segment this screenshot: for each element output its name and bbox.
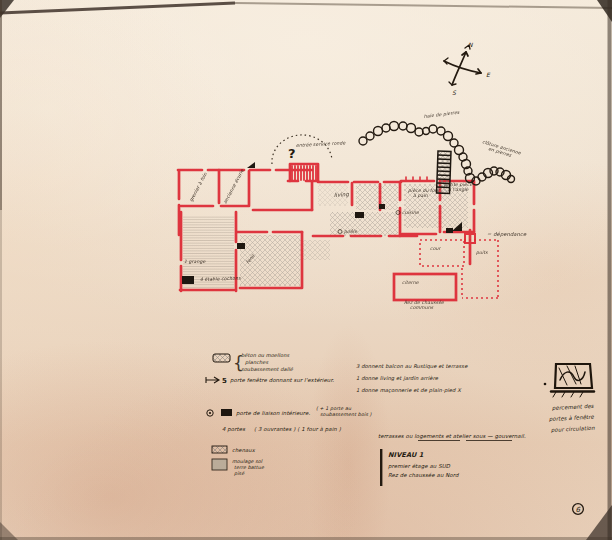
legend-material-1: béton ou moellons <box>241 352 289 358</box>
legend-material-3: soubassement dallé <box>241 366 294 372</box>
legend-liaison-paren-2: soubassement bois ) <box>320 412 372 417</box>
legend-right-2: 1 donne living et jardin arrière <box>356 375 439 382</box>
legend-moulage-2: terre battue <box>234 465 265 470</box>
label-cour: cour <box>430 246 442 251</box>
niveau-block: NIVEAU 1 premier étage au SUD Rez de cha… <box>380 449 459 486</box>
legend-right-1: 3 donnent balcon au Rustique et terrasse <box>356 363 468 370</box>
percement-line-2: portes à fenêtre <box>549 414 595 423</box>
compass-rose-icon <box>444 45 481 85</box>
label-citerne: citerne <box>402 280 420 285</box>
compass-east-label: E <box>486 71 491 78</box>
label-grenier: grenier à foin <box>188 171 208 203</box>
page-mark: 6 <box>573 504 584 515</box>
label-poele: poêle <box>344 229 358 234</box>
compass-south-label: S <box>452 89 457 96</box>
liaison-door-swatch <box>221 409 232 416</box>
red-question-mark: ? <box>288 146 296 161</box>
percement-caption: percement des portes à fenêtre pour circ… <box>549 403 596 434</box>
compass-north-label: N <box>468 41 473 48</box>
legend-pf-count: 5 <box>222 377 227 385</box>
photo-edges <box>0 0 612 540</box>
legend: { béton ou moellons planches soubassemen… <box>206 352 468 476</box>
porte-fenetre-arrow-icon <box>206 377 219 383</box>
page-mark-number: 6 <box>576 506 581 514</box>
legend-moulage-swatch <box>212 459 227 470</box>
legend-moulage-3: pisé <box>234 471 245 476</box>
label-dependance: = dépendance <box>487 231 527 238</box>
legend-right-3: 1 donne maçonnerie et de plain-pied X <box>356 387 462 394</box>
legend-chenaux: chenaux <box>232 447 256 453</box>
legend-material-2: planches <box>245 359 268 366</box>
niveau-title: NIVEAU 1 <box>388 451 424 459</box>
plan-drawing: N E S <box>0 0 612 540</box>
niveau-bar <box>380 449 382 486</box>
photographed-sketch-sheet: N E S <box>0 0 612 540</box>
label-puits: puits <box>476 250 488 255</box>
liaison-door-icon-dot <box>209 412 211 414</box>
legend-portes4: 4 portes <box>222 426 246 433</box>
terrasse-note: terrasses ou logements et atelier sous —… <box>378 433 526 440</box>
label-grange: 1 grange <box>184 259 207 264</box>
label-four-2: à pain <box>413 193 429 198</box>
dotted-dome-arc <box>272 135 332 164</box>
legend-chenaux-swatch <box>212 446 227 453</box>
label-cuisine: cuisine <box>402 210 420 215</box>
percement-line-3: pour circulation <box>551 425 596 434</box>
plan-labels: entrée service ronde haie de pierres clô… <box>184 110 527 310</box>
legend-masonry-swatch <box>213 354 230 362</box>
legend-pf-text: porte fenêtre donnant sur l'extérieur. <box>230 377 334 384</box>
percement-line-1: percement des <box>552 403 595 412</box>
niveau-line-1: premier étage au SUD <box>388 463 451 470</box>
niveau-line-2: Rez de chaussée au Nord <box>388 472 459 478</box>
door-detail-sketch <box>544 364 594 397</box>
label-petite-2: à l'angle <box>448 187 470 192</box>
legend-liaison-paren-1: ( + 1 porte au <box>316 406 352 411</box>
label-ecurie: ancienne écurie <box>222 167 245 204</box>
legend-liaison-text: porte de liaison intérieure. <box>236 410 310 417</box>
label-entree: entrée service ronde <box>296 140 347 148</box>
label-haie: haie de pierres <box>424 110 461 119</box>
label-rdc-2: communs <box>410 305 434 310</box>
legend-moulage-1: moulage sol <box>232 459 263 464</box>
legend-portes4-detail: ( 3 ouvrantes ) ( 1 four à pain ) <box>254 426 342 433</box>
